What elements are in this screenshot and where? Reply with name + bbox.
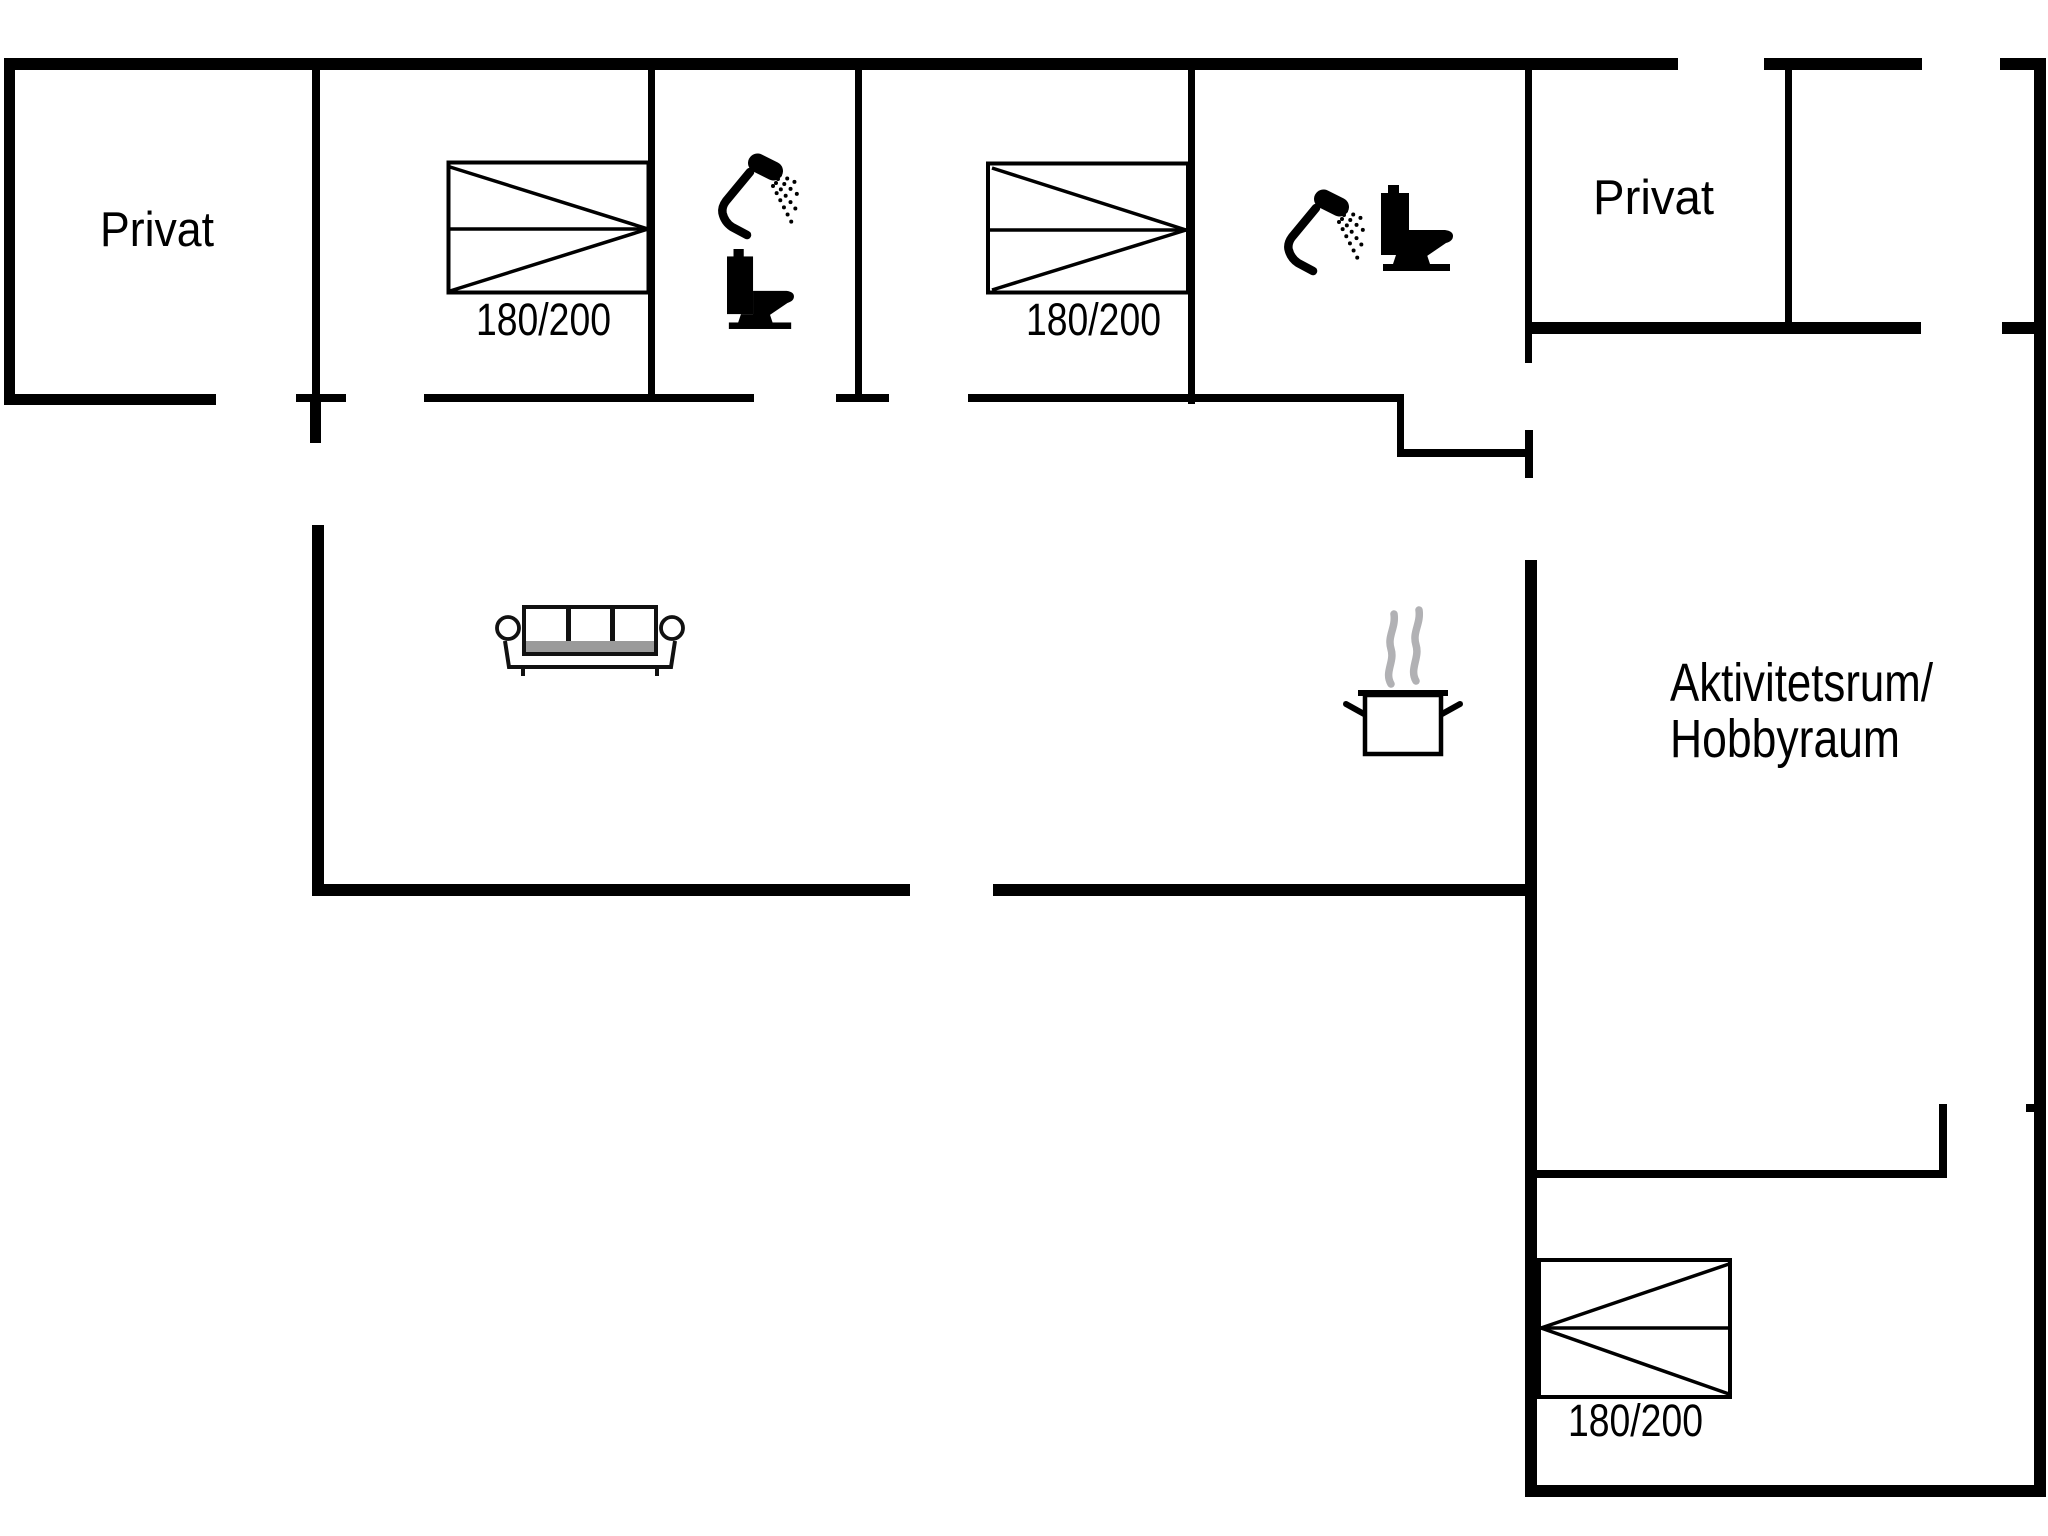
svg-text:180/200: 180/200 (1026, 294, 1161, 345)
svg-text:Aktivitetsrum/: Aktivitetsrum/ (1670, 653, 1933, 713)
svg-text:180/200: 180/200 (476, 294, 611, 345)
svg-text:Privat: Privat (100, 203, 214, 257)
svg-text:Hobbyraum: Hobbyraum (1670, 709, 1900, 769)
svg-text:180/200: 180/200 (1568, 1395, 1703, 1446)
svg-text:Privat: Privat (1593, 171, 1714, 225)
